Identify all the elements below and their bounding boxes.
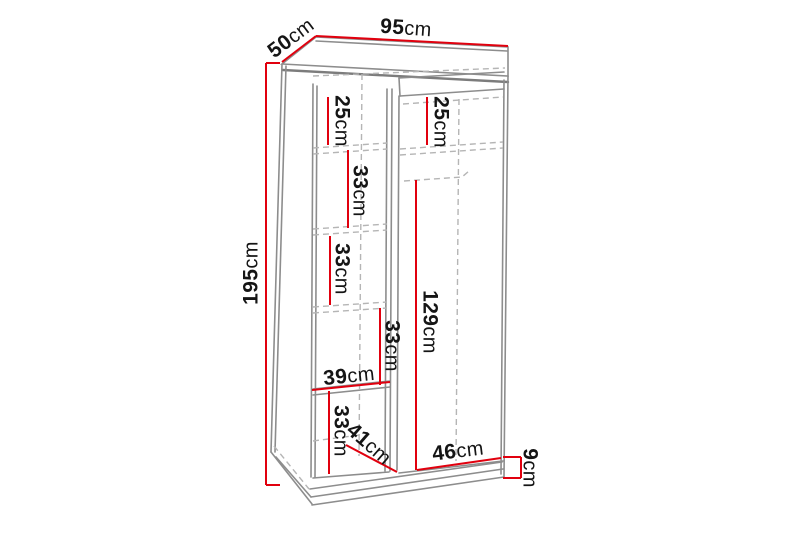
dim-value: 9 <box>519 448 542 460</box>
back-corner-right <box>456 99 459 461</box>
dim-label-height-left: 195cm <box>241 241 262 305</box>
dim-label-left-section-4: 33cm <box>382 320 403 372</box>
wardrobe-dimension-diagram: 50cm 95cm 195cm 25cm 25cm 33cm 33cm 33cm… <box>0 0 800 533</box>
right-section-left-edge <box>397 96 399 470</box>
dim-label-left-section-2: 33cm <box>350 165 371 217</box>
dim-label-width-top: 95cm <box>380 16 433 41</box>
dim-label-plinth-height: 9cm <box>520 448 541 488</box>
wardrobe-line-drawing <box>0 0 800 533</box>
dim-value: 129 <box>419 290 442 326</box>
right-edge-inner <box>501 80 504 474</box>
right-edge <box>504 76 508 477</box>
dim-unit: cm <box>519 460 541 487</box>
dim-label-left-top-section: 25cm <box>332 95 353 147</box>
left-shelf-2 <box>313 224 387 229</box>
dim-value: 33 <box>381 320 404 344</box>
dim-label-left-column-width: 39cm <box>322 363 376 389</box>
dim-unit: cm <box>381 344 403 371</box>
center-divider-inner <box>390 89 392 471</box>
dim-unit: cm <box>331 119 353 146</box>
dim-unit: cm <box>419 326 441 353</box>
side-foot-hidden <box>274 446 309 489</box>
center-divider <box>385 89 387 471</box>
interior-left-wall-inner <box>315 86 317 477</box>
dim-value: 39 <box>322 365 348 390</box>
dim-value: 25 <box>331 95 354 119</box>
dim-value: 46 <box>431 440 458 466</box>
dim-label-left-section-3: 33cm <box>332 243 353 295</box>
hanging-rail <box>404 171 469 181</box>
bottom-edge <box>312 477 504 505</box>
dim-unit: cm <box>331 267 353 294</box>
right-shelf <box>400 142 503 149</box>
dimension-lines <box>266 36 521 485</box>
dim-unit: cm <box>241 241 263 268</box>
dim-label-hanging-height: 129cm <box>420 290 441 354</box>
side-foot-edge <box>271 452 312 504</box>
top-strip-underside <box>403 97 503 104</box>
top-strip-bottom <box>400 89 504 96</box>
left-shelf-2-thickness <box>313 230 387 235</box>
dim-unit: cm <box>430 120 452 147</box>
plinth-band <box>311 469 503 497</box>
dim-label-right-top-section: 25cm <box>431 96 452 148</box>
dim-unit: cm <box>349 189 371 216</box>
dim-unit: cm <box>455 437 485 462</box>
back-corner-left <box>359 74 362 456</box>
dim-value: 95 <box>379 15 405 40</box>
dimension-line-height-195 <box>266 63 280 485</box>
floor-left-column <box>313 472 389 478</box>
left-shelf-3-thickness <box>313 308 387 313</box>
dim-unit: cm <box>404 17 433 41</box>
dim-value: 33 <box>331 243 354 267</box>
interior-left-wall <box>311 84 313 477</box>
top-face <box>282 37 508 76</box>
side-foot-edge-inner <box>276 457 311 497</box>
cabinet-outline-solid <box>271 37 508 505</box>
dim-value: 195 <box>240 269 263 305</box>
right-shelf-thickness <box>400 148 503 155</box>
left-shelf-1-thickness <box>313 149 387 154</box>
dim-unit: cm <box>346 363 376 388</box>
left-shelf-3 <box>313 302 387 307</box>
top-strip-left <box>399 78 400 96</box>
dim-value: 25 <box>430 96 453 120</box>
dim-value: 33 <box>349 165 372 189</box>
